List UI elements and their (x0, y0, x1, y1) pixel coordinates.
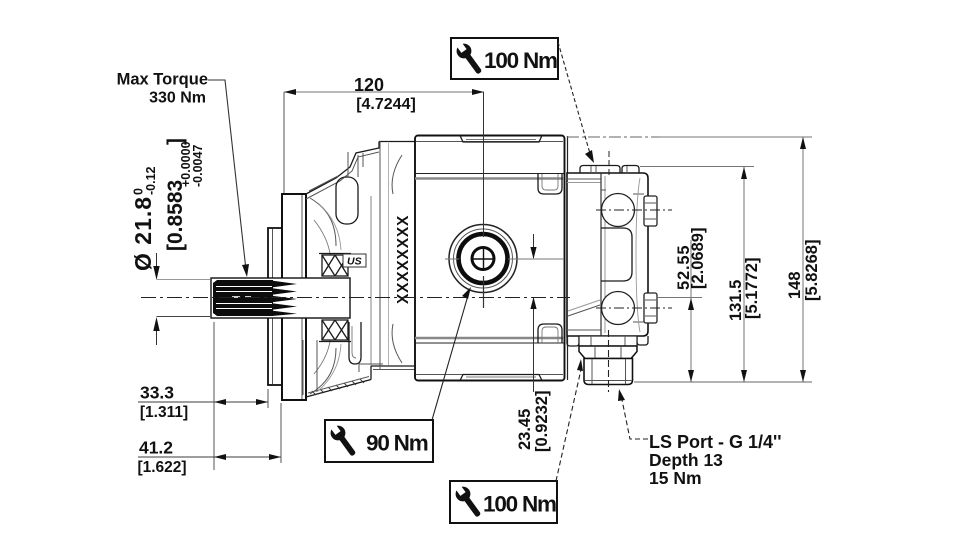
svg-text:33.3: 33.3 (140, 383, 174, 403)
svg-text:23.45: 23.45 (516, 409, 534, 450)
svg-text:-0.0047: -0.0047 (191, 145, 205, 187)
svg-text:148: 148 (786, 271, 804, 299)
svg-text:Depth 13: Depth 13 (649, 450, 723, 470)
svg-text:120: 120 (354, 75, 384, 95)
svg-text:15 Nm: 15 Nm (649, 468, 702, 488)
svg-text:[0.9232]: [0.9232] (533, 391, 551, 452)
svg-text:[5.8268]: [5.8268] (803, 240, 821, 301)
svg-text:Max Torque: Max Torque (117, 71, 208, 89)
svg-text:[0.8583: [0.8583 (164, 180, 187, 251)
svg-text:LS Port - G 1/4'': LS Port - G 1/4'' (649, 432, 782, 452)
svg-text:US: US (347, 256, 362, 268)
svg-text:100 Nm: 100 Nm (484, 48, 557, 73)
svg-text:]: ] (164, 138, 187, 145)
svg-text:[4.7244]: [4.7244] (356, 96, 416, 113)
svg-text:XXXXXXXX: XXXXXXXX (395, 215, 412, 304)
svg-text:[2.0689]: [2.0689] (689, 228, 707, 289)
svg-text:41.2: 41.2 (139, 438, 173, 458)
svg-text:100 Nm: 100 Nm (483, 492, 556, 517)
svg-text:[5.1772]: [5.1772] (743, 258, 761, 319)
svg-text:[1.311]: [1.311] (140, 404, 188, 421)
svg-text:-0.12: -0.12 (144, 166, 158, 195)
svg-text:90 Nm: 90 Nm (366, 431, 428, 456)
svg-text:[1.622]: [1.622] (137, 459, 186, 476)
svg-text:Ø 21.8: Ø 21.8 (130, 196, 156, 271)
svg-text:330 Nm: 330 Nm (149, 90, 206, 107)
